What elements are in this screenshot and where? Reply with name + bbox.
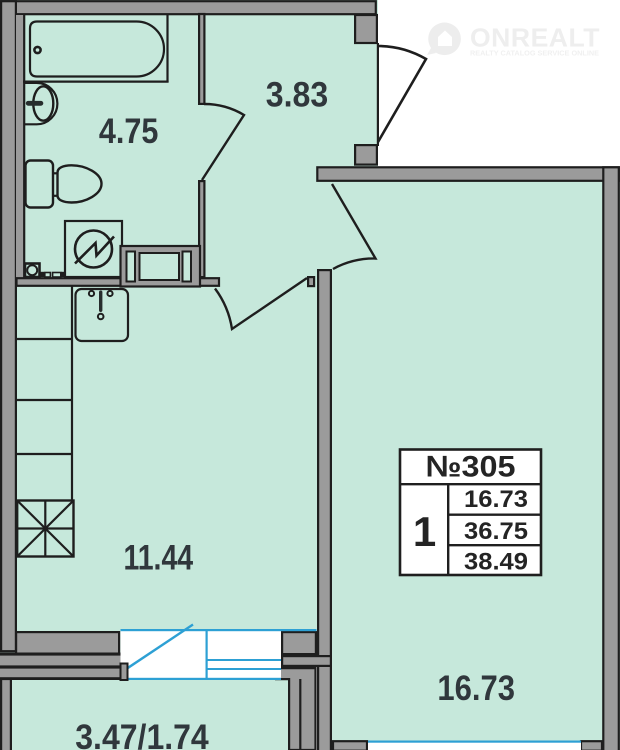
svg-text:36.75: 36.75 [464,518,528,545]
svg-text:1: 1 [413,508,436,555]
svg-text:16.73: 16.73 [464,486,528,513]
svg-text:3.47/1.74: 3.47/1.74 [75,717,209,750]
svg-text:3.83: 3.83 [266,75,328,115]
svg-text:REALTY CATALOG SERVICE ONLINE: REALTY CATALOG SERVICE ONLINE [470,51,599,58]
svg-text:11.44: 11.44 [123,538,193,578]
svg-text:38.49: 38.49 [464,548,528,575]
svg-text:16.73: 16.73 [437,668,515,708]
svg-text:ONREALT: ONREALT [470,23,600,53]
svg-text:№305: №305 [426,451,516,484]
svg-text:4.75: 4.75 [99,111,159,151]
